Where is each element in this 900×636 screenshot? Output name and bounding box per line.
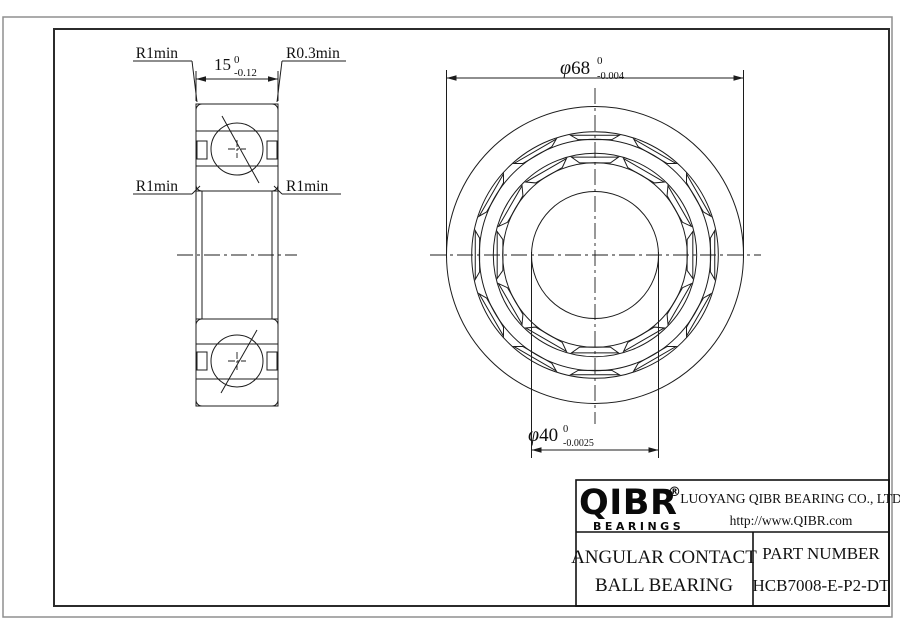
dim-outer-value: 68 [571,58,590,79]
dim-outer-tol-upper: 0 [597,55,603,67]
product-name-line1: ANGULAR CONTACT [571,547,757,568]
logo-subtext: BEARINGS [593,520,684,533]
dim-width-tol-lower: -0.12 [234,67,257,79]
fillet-label-top-right: R0.3min [286,45,340,62]
company-website: http://www.QIBR.com [730,513,853,528]
dim-bore-tol-lower: -0.0025 [563,438,594,449]
dim-bore-tol-upper: 0 [563,424,568,435]
dim-width-tol-upper: 0 [234,54,240,66]
dim-outer-tol-lower: -0.004 [597,71,625,82]
dim-width-value: 15 [214,55,231,74]
dim-bore-dia: φ40 [528,424,558,446]
dim-outer-dia: φ68 [560,57,590,79]
drawing-sheet: 15 0 -0.12 R1min R0.3min R1min R1min [0,0,900,636]
bearing-technical-drawing: 15 0 -0.12 R1min R0.3min R1min R1min [0,0,900,636]
fillet-label-top-left: R1min [136,45,178,62]
part-number-value: HCB7008-E-P2-DT [753,576,891,595]
part-number-label: PART NUMBER [762,544,880,563]
product-name-line2: BALL BEARING [595,575,733,596]
diameter-symbol: φ [560,57,571,79]
company-name: LUOYANG QIBR BEARING CO., LTD [680,491,900,506]
fillet-label-mid-right: R1min [286,178,328,195]
company-logo: QIBR [579,483,677,523]
diameter-symbol: φ [528,424,539,446]
dim-bore-value: 40 [539,425,558,446]
fillet-label-mid-left: R1min [136,178,178,195]
registered-trademark-icon: ® [668,485,681,500]
